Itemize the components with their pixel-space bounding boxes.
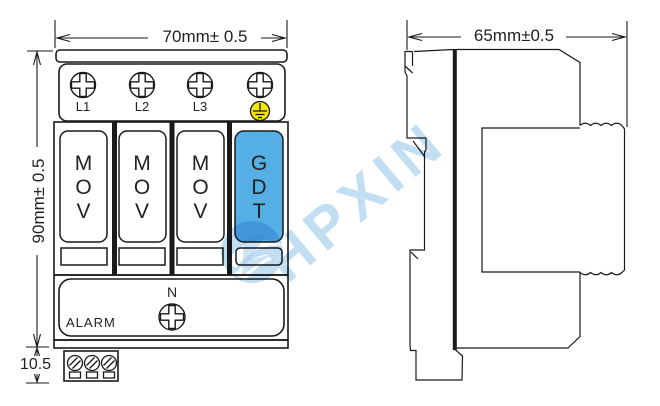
side-top-left-edge <box>414 50 453 52</box>
wire-opening <box>104 372 115 378</box>
alarm-label: ALARM <box>66 315 116 330</box>
din-clip-spring <box>413 141 425 157</box>
wire-opening <box>87 372 98 378</box>
slotted-screw-icon <box>102 356 117 371</box>
front-top-strip <box>56 50 287 62</box>
wire-opening <box>70 372 81 378</box>
earth-ground-icon <box>251 102 270 121</box>
dimension-base-label: 10.5 <box>12 356 59 374</box>
slotted-screw-icon <box>68 356 83 371</box>
neutral-label: N <box>152 284 192 300</box>
alarm-contact-terminals <box>68 356 117 379</box>
module-seat-lines <box>482 128 580 272</box>
slotted-screw-icon <box>85 356 100 371</box>
screw-l3-icon <box>188 73 213 98</box>
module-label-mov-2: MOV <box>122 152 162 224</box>
module-window-2 <box>119 248 165 265</box>
terminal-screws <box>71 73 273 98</box>
module-label-gdt: GDT <box>239 152 279 224</box>
plug-module-cap <box>580 123 625 275</box>
side-body-back-panel <box>453 49 457 350</box>
side-body-top <box>456 50 580 126</box>
screw-pe-icon <box>248 73 273 98</box>
side-bottom-terminal <box>410 345 463 380</box>
side-body-bottom <box>456 275 580 348</box>
module-divider <box>227 122 232 275</box>
module-label-mov-3: MOV <box>181 152 221 224</box>
module-label-mov-1: MOV <box>64 152 104 224</box>
din-clip-hook <box>405 52 413 74</box>
module-divider <box>112 122 117 275</box>
screw-l1-icon <box>71 73 96 98</box>
back-plate-upper-edge <box>405 72 426 138</box>
module-window-3 <box>177 248 223 265</box>
module-divider <box>170 122 175 275</box>
screw-l2-icon <box>130 73 155 98</box>
screw-n-icon <box>159 304 185 330</box>
side-view <box>405 49 625 380</box>
dimension-width-label: 70mm± 0.5 <box>149 27 261 47</box>
din-notch-detail <box>411 252 418 259</box>
dimension-height-label: 90mm± 0.5 <box>29 147 49 255</box>
module-window-1 <box>61 248 107 265</box>
terminal-label-l2: L2 <box>122 99 162 114</box>
module-window-4 <box>236 248 282 265</box>
spd-dimension-drawing: 70mm± 0.5 90mm± 0.5 10.5 65mm±0.5 L1 L2 … <box>0 0 660 406</box>
terminal-label-l3: L3 <box>180 99 220 114</box>
terminal-label-l1: L1 <box>63 99 103 114</box>
dimension-side-width-label: 65mm±0.5 <box>462 26 566 46</box>
front-bottom-strip <box>54 340 288 348</box>
back-plate-channel-edge <box>410 138 426 345</box>
